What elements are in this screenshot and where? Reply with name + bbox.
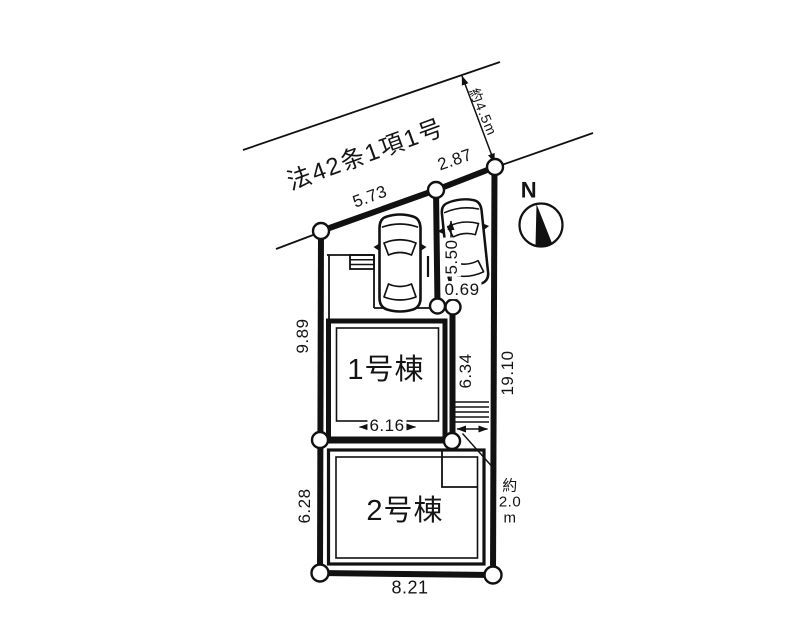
building2-label: 2号棟 xyxy=(366,496,443,526)
corner-marker xyxy=(428,182,444,198)
entry-steps-icon xyxy=(350,255,374,269)
site-plan-canvas xyxy=(0,0,797,622)
corner-marker xyxy=(487,159,503,175)
corner-marker xyxy=(444,433,460,449)
dim-bottom: 8.21 xyxy=(391,579,428,598)
site-plan: 法42条1項1号 約4.5m 5.73 2.87 N 5.50 0.69 9.8… xyxy=(0,0,797,622)
dim-building1-width: 6.16 xyxy=(367,417,406,435)
dim-approach-depth: 6.34 xyxy=(457,353,475,388)
approach-width-line1: 約 xyxy=(499,478,521,494)
approach-width-line2: 2.0 xyxy=(499,494,521,510)
corner-marker xyxy=(312,565,329,582)
dim-parking-length: 5.50 xyxy=(443,237,461,276)
corner-marker xyxy=(312,432,328,448)
stairs-icon xyxy=(453,402,490,422)
dim-parking-gap: 0.69 xyxy=(442,281,481,299)
corner-marker xyxy=(313,223,329,239)
corner-marker xyxy=(485,567,502,584)
north-compass-icon xyxy=(520,204,563,247)
dim-right-side: 19.10 xyxy=(499,350,517,395)
approach-width-line3: m xyxy=(499,510,521,526)
building1-label: 1号棟 xyxy=(347,355,424,385)
dim-left-lower: 6.28 xyxy=(296,488,314,523)
car-icon xyxy=(374,215,427,312)
corner-marker xyxy=(430,299,445,314)
north-label: N xyxy=(521,178,537,201)
dim-left-upper: 9.89 xyxy=(294,318,312,353)
approach-width-label: 約 2.0 m xyxy=(499,478,521,525)
corner-marker xyxy=(446,300,461,315)
